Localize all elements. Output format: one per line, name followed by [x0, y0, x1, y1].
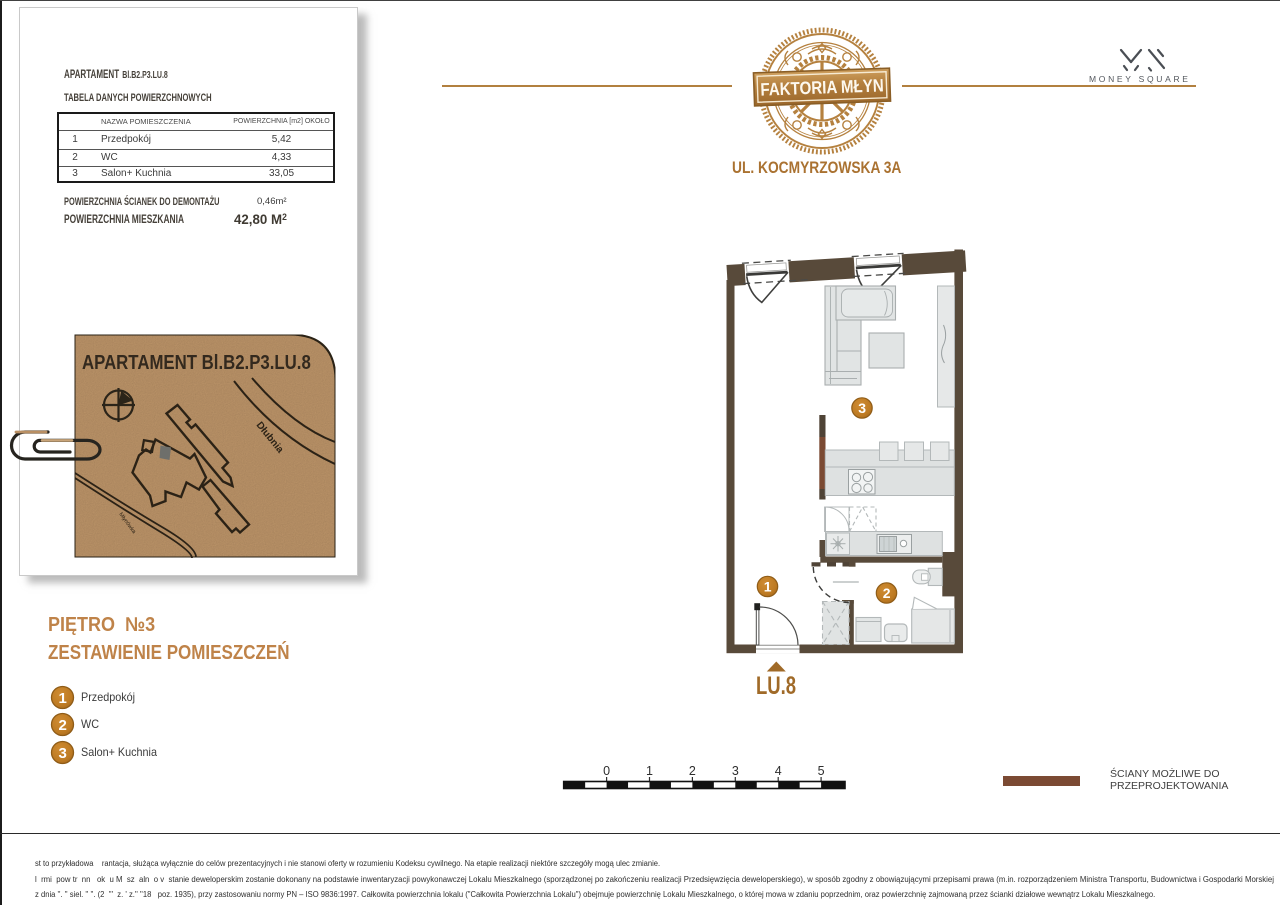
svg-text:2: 2: [883, 585, 891, 601]
svg-text:2: 2: [59, 717, 67, 734]
svg-text:1: 1: [59, 690, 67, 707]
svg-text:APARTAMENT Bl.B2.P3.LU.8: APARTAMENT Bl.B2.P3.LU.8: [82, 351, 311, 374]
svg-text:3: 3: [59, 745, 67, 762]
svg-text:2: 2: [689, 764, 696, 778]
svg-text:1: 1: [646, 764, 653, 778]
svg-text:0: 0: [603, 764, 610, 778]
svg-text:5: 5: [818, 764, 825, 778]
svg-text:4: 4: [775, 764, 782, 778]
svg-text:1: 1: [764, 579, 772, 595]
svg-text:3: 3: [858, 400, 866, 416]
svg-text:3: 3: [732, 764, 739, 778]
svg-text:LU.8: LU.8: [756, 671, 796, 699]
svg-text:FAKTORIA MŁYN: FAKTORIA MŁYN: [760, 75, 884, 100]
